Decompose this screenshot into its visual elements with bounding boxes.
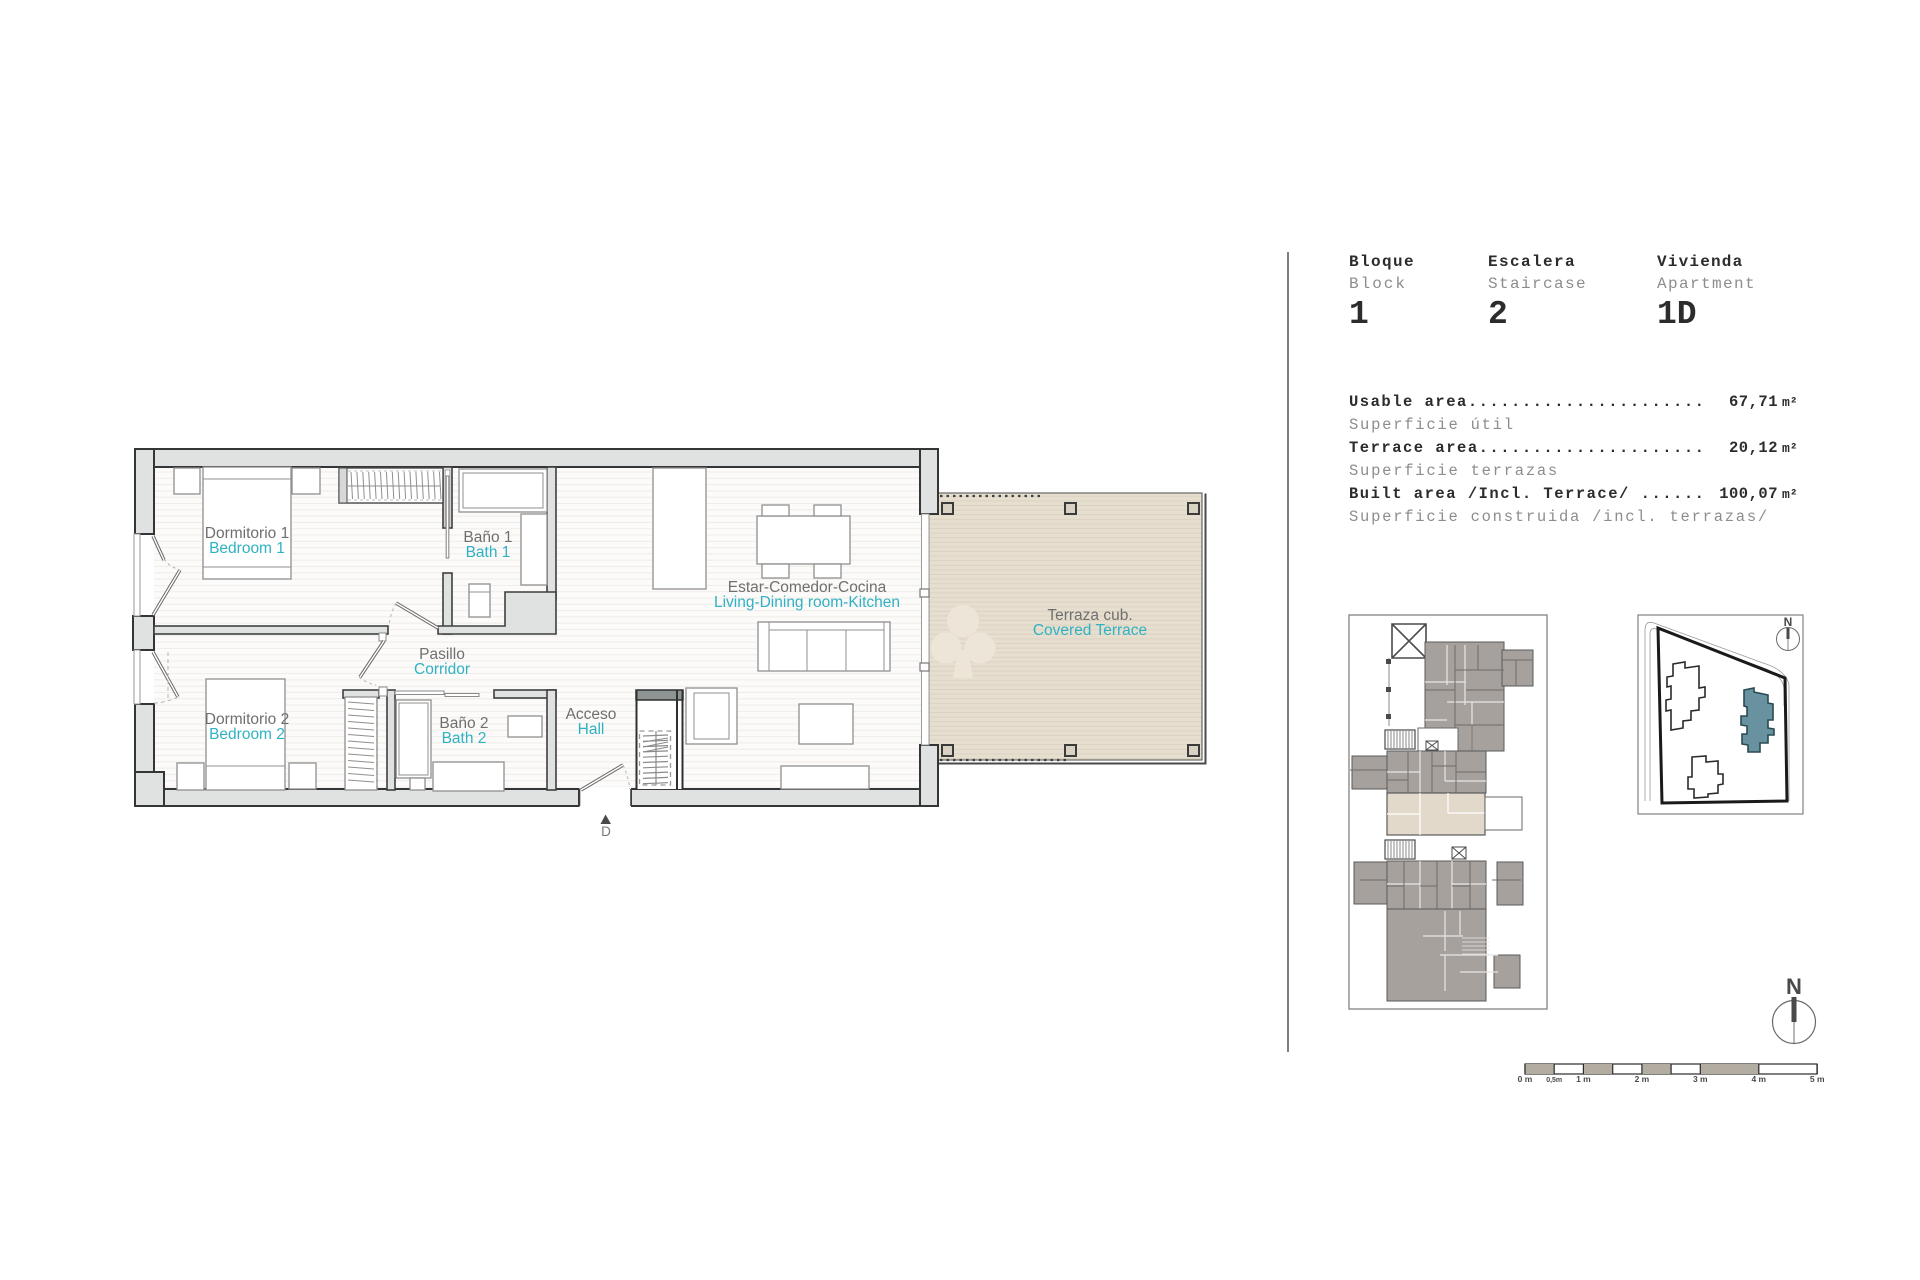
- svg-text:Covered Terrace: Covered Terrace: [1033, 622, 1147, 639]
- svg-text:2 m: 2 m: [1635, 1074, 1650, 1084]
- svg-text:N: N: [1784, 615, 1793, 629]
- svg-text:D: D: [601, 824, 611, 839]
- svg-text:Corridor: Corridor: [414, 661, 470, 678]
- svg-text:0,5m: 0,5m: [1546, 1077, 1562, 1084]
- svg-text:Built area /Incl. Terrace/ ...: Built area /Incl. Terrace/ ......: [1349, 485, 1705, 503]
- svg-text:Block: Block: [1349, 275, 1407, 293]
- svg-text:5 m: 5 m: [1810, 1074, 1825, 1084]
- svg-text:Superficie terrazas: Superficie terrazas: [1349, 462, 1559, 480]
- svg-text:1D: 1D: [1657, 296, 1697, 333]
- svg-text:Bloque: Bloque: [1349, 253, 1415, 271]
- svg-text:Terrace area..................: Terrace area.....................: [1349, 439, 1705, 457]
- svg-text:Apartment: Apartment: [1657, 275, 1756, 293]
- svg-text:Vivienda: Vivienda: [1657, 253, 1743, 271]
- svg-text:3 m: 3 m: [1693, 1074, 1708, 1084]
- svg-text:0 m: 0 m: [1518, 1074, 1533, 1084]
- svg-text:Bedroom 1: Bedroom 1: [209, 540, 285, 557]
- svg-text:m²: m²: [1782, 395, 1798, 410]
- svg-text:100,07: 100,07: [1719, 485, 1778, 503]
- svg-text:Staircase: Staircase: [1488, 275, 1587, 293]
- svg-text:Escalera: Escalera: [1488, 253, 1576, 271]
- svg-text:Hall: Hall: [578, 721, 605, 738]
- svg-text:N: N: [1786, 974, 1802, 999]
- svg-text:Bath 2: Bath 2: [442, 730, 487, 747]
- svg-text:Superficie útil: Superficie útil: [1349, 416, 1515, 434]
- svg-text:67,71: 67,71: [1729, 393, 1778, 411]
- svg-text:m²: m²: [1782, 487, 1798, 502]
- svg-text:1 m: 1 m: [1576, 1074, 1591, 1084]
- svg-text:20,12: 20,12: [1729, 439, 1778, 457]
- svg-text:Bedroom 2: Bedroom 2: [209, 726, 285, 743]
- svg-text:Bath 1: Bath 1: [466, 544, 511, 561]
- svg-text:Superficie construida /incl. t: Superficie construida /incl. terrazas/: [1349, 508, 1769, 526]
- svg-text:4 m: 4 m: [1751, 1074, 1766, 1084]
- svg-text:1: 1: [1349, 296, 1369, 333]
- svg-text:Usable area...................: Usable area......................: [1349, 393, 1705, 411]
- svg-text:2: 2: [1488, 296, 1508, 333]
- svg-text:m²: m²: [1782, 441, 1798, 456]
- svg-text:Living-Dining room-Kitchen: Living-Dining room-Kitchen: [714, 594, 900, 611]
